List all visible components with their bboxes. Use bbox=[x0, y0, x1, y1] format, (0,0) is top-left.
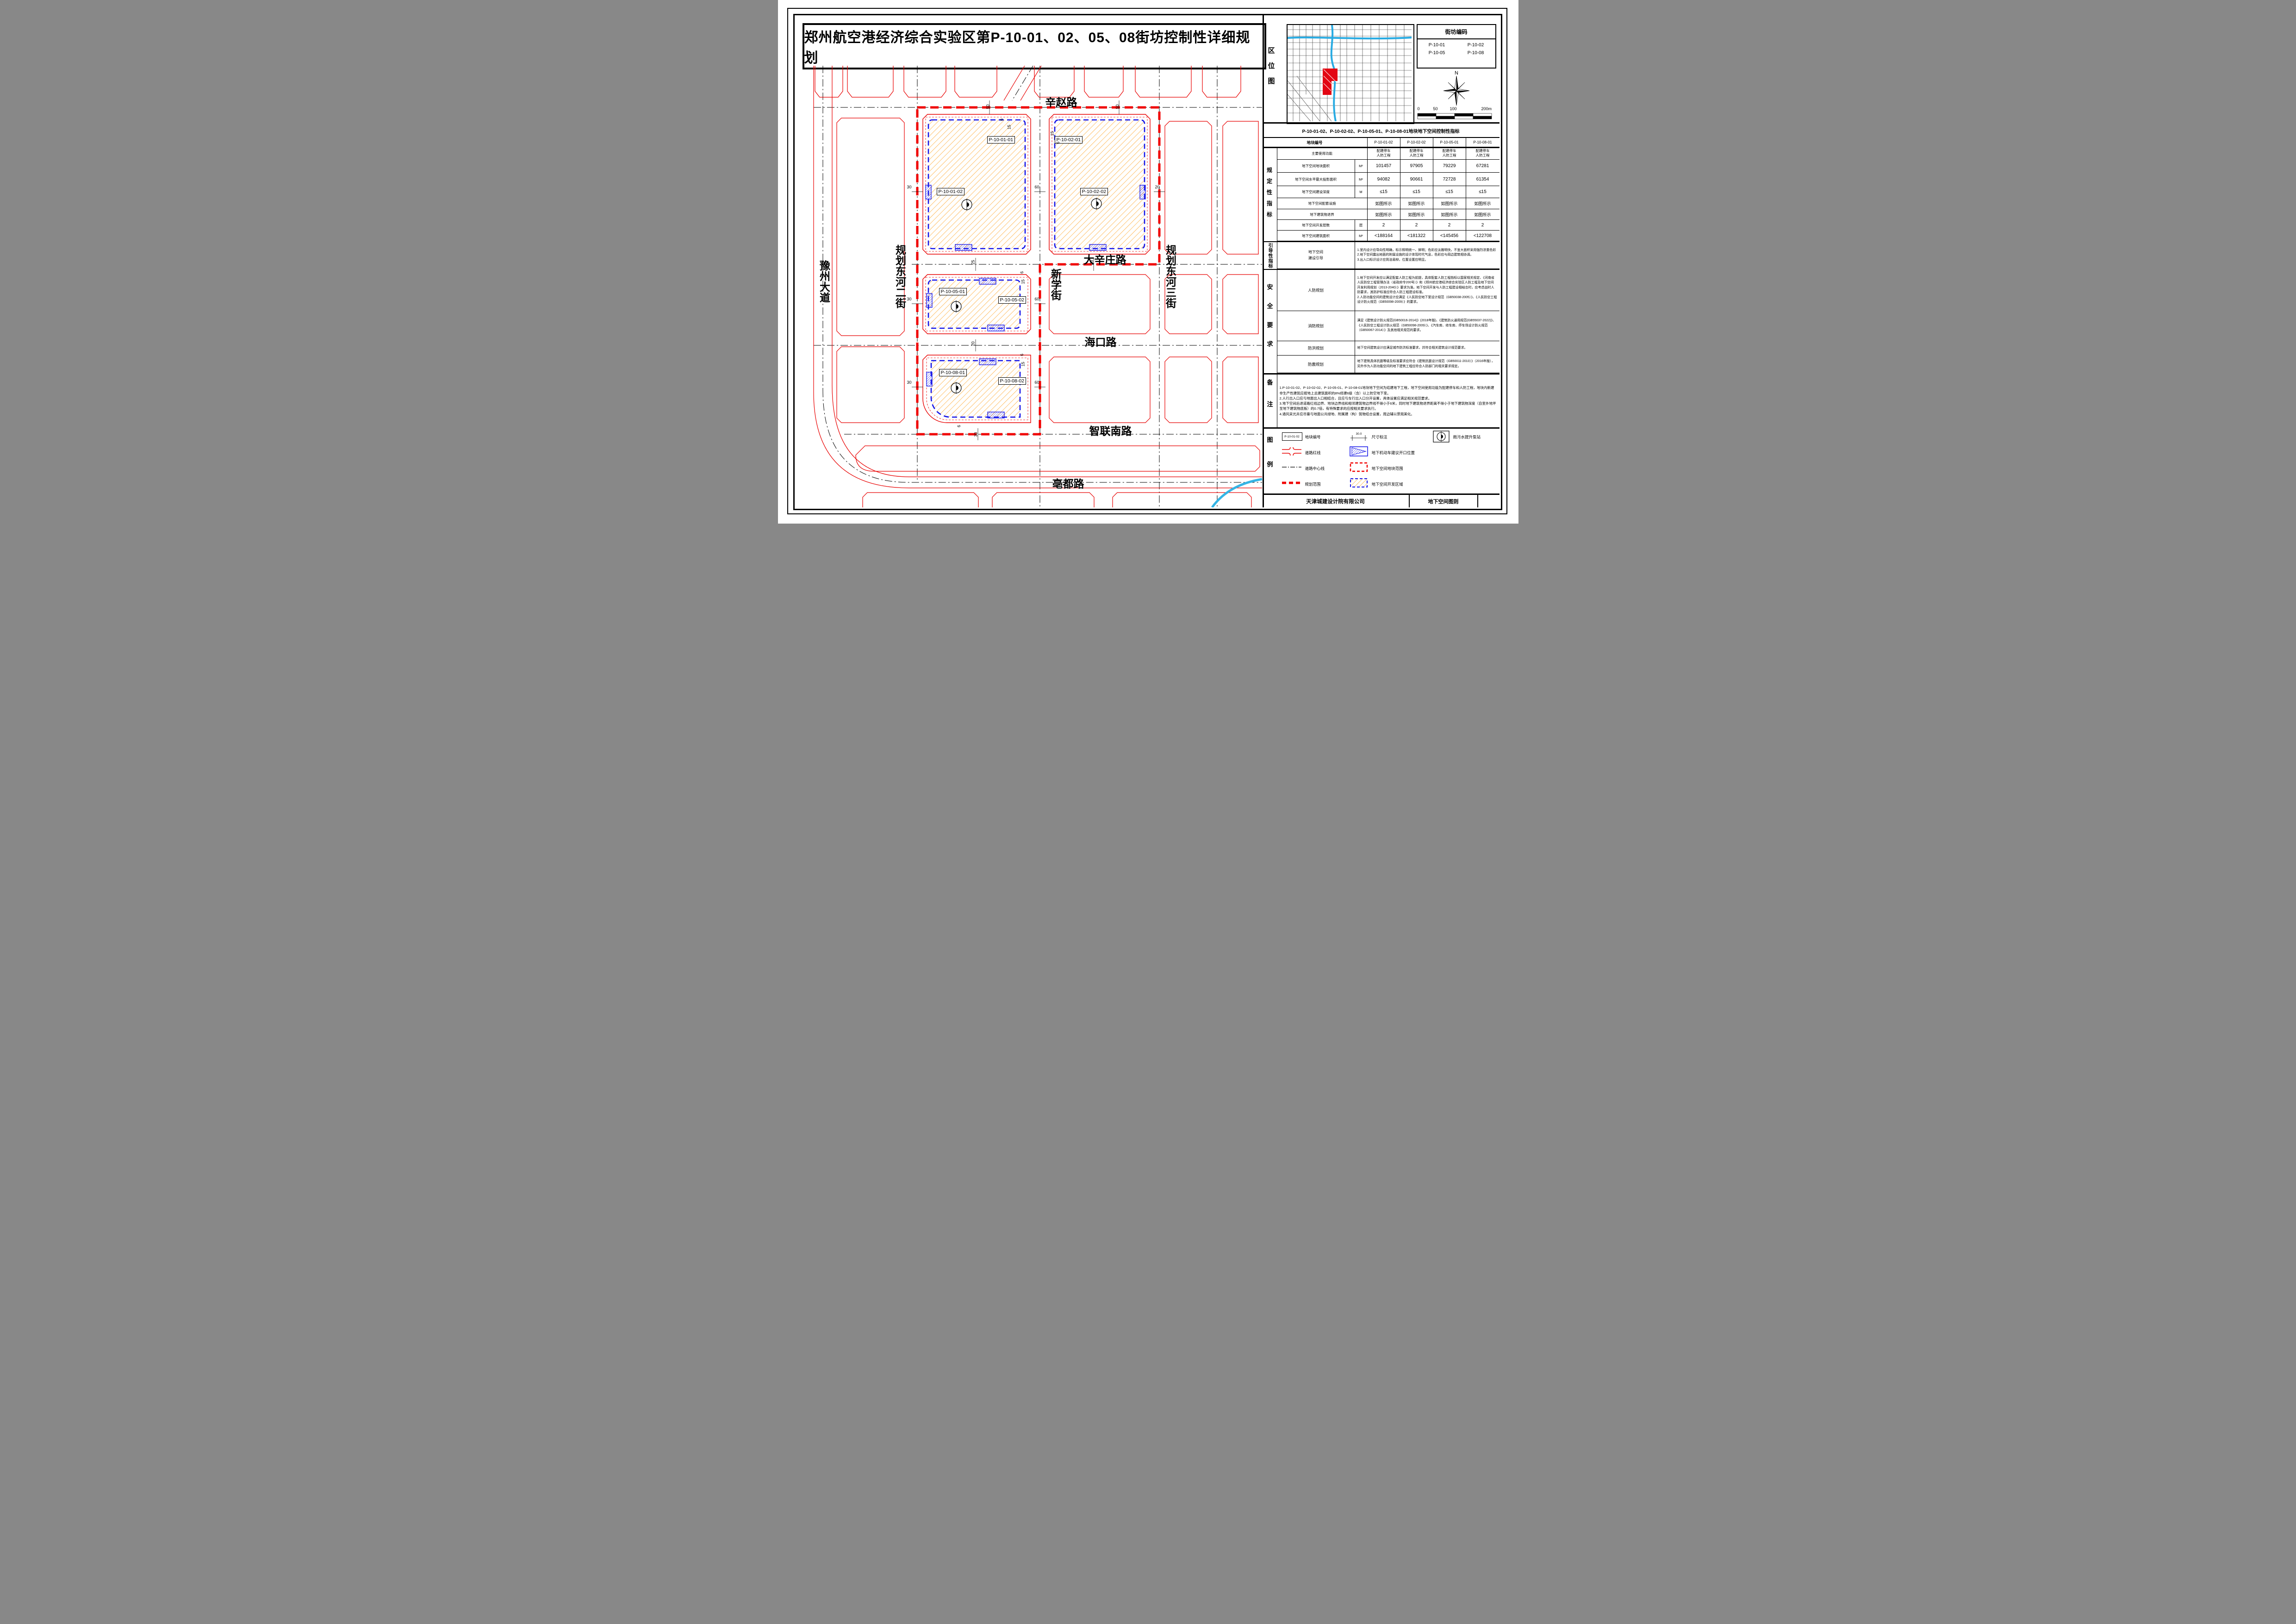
dim-label: 30 bbox=[907, 185, 912, 189]
cell-value: 2 bbox=[1433, 220, 1466, 231]
cell-value: 如图所示 bbox=[1367, 209, 1400, 220]
design-company: 天津城建设计院有限公司 bbox=[1263, 495, 1409, 507]
column-header: P-10-02-02 bbox=[1400, 138, 1433, 147]
column-header: P-10-08-01 bbox=[1466, 138, 1500, 147]
sheet-name: 地下空间图则 bbox=[1409, 495, 1477, 507]
row-label: 主要使用功能 bbox=[1277, 147, 1367, 160]
block-code-item: P-10-05 bbox=[1418, 50, 1456, 56]
guidance-section: 引导性指标 地下空间 建设引导 1.室内设计应导向性明确，标示照明统一、鲜明；色… bbox=[1263, 242, 1500, 269]
legend-label: 雨污水提升泵站 bbox=[1453, 434, 1481, 440]
dim-label: 15 bbox=[1007, 125, 1011, 129]
road-label-yuzhou: 豫州大道 bbox=[816, 260, 832, 303]
cell-value: 如图所示 bbox=[1466, 198, 1500, 209]
vehicle-opening-icon bbox=[955, 244, 972, 250]
road-label-donghe3: 规划东河三街 bbox=[1163, 244, 1178, 308]
safety-row-label: 消防规划 bbox=[1277, 311, 1355, 341]
plan-sheet: 郑州航空港经济综合实验区第P-10-01、02、05、08街坊控制性详细规划 bbox=[778, 0, 1518, 524]
cell-value: ≤15 bbox=[1433, 186, 1466, 198]
dim-label: 15 bbox=[1021, 279, 1025, 284]
planning-block-p-10-05 bbox=[923, 275, 1031, 334]
safety-row-label: 防洪规划 bbox=[1277, 341, 1355, 356]
minimap-canvas bbox=[1288, 25, 1412, 121]
cell-value: 79229 bbox=[1433, 160, 1466, 173]
block-label: P-10-01-02 bbox=[937, 188, 965, 195]
row-label: 地下空间水平最大投影面积 bbox=[1277, 173, 1355, 186]
minimap-river2 bbox=[1288, 37, 1412, 38]
cell-value: 2 bbox=[1367, 220, 1400, 231]
cell-value: 如图所示 bbox=[1367, 198, 1400, 209]
legend-label: 尺寸标注 bbox=[1372, 434, 1388, 440]
row-unit: M² bbox=[1355, 160, 1367, 173]
legend-section: 图例 P-10-01-02 地块编号 道路红线 道路中心线 规划范围 30.0 … bbox=[1263, 429, 1500, 493]
vehicle-opening-icon bbox=[979, 359, 996, 365]
road-label-xinxue: 新学街 bbox=[1048, 269, 1064, 300]
cell-value: 配建停车 人防工程 bbox=[1400, 147, 1433, 160]
block-label: P-10-02-02 bbox=[1080, 188, 1108, 195]
scale-bar-icon bbox=[1417, 112, 1496, 122]
scale-tick: 200m bbox=[1481, 106, 1492, 111]
block-label: P-10-01-01 bbox=[987, 136, 1015, 144]
page-title: 郑州航空港经济综合实验区第P-10-01、02、05、08街坊控制性详细规划 bbox=[804, 26, 1264, 67]
dim-label: 6 bbox=[1056, 142, 1060, 144]
cell-value: <188164 bbox=[1367, 231, 1400, 241]
block-code-item: P-10-08 bbox=[1456, 50, 1495, 56]
legend-underground-block-extent-icon bbox=[1350, 462, 1368, 472]
scale-tick: 100 bbox=[1450, 106, 1457, 111]
legend-label: 地下机动车建议开口位置 bbox=[1372, 450, 1415, 456]
block-label: P-10-08-02 bbox=[998, 377, 1027, 385]
legend-road-center-line-icon bbox=[1282, 463, 1301, 471]
row-unit: M bbox=[1355, 186, 1367, 198]
row-label: 地下建筑物退界 bbox=[1277, 209, 1367, 220]
row-unit: 层 bbox=[1355, 220, 1367, 231]
vehicle-opening-icon bbox=[927, 372, 932, 386]
road-label-bodu: 亳都路 bbox=[1052, 475, 1084, 491]
row-label: 地下空间开发层数 bbox=[1277, 220, 1355, 231]
footer-empty-cell bbox=[1477, 495, 1500, 507]
vehicle-opening-icon bbox=[979, 278, 996, 284]
scale-tick: 0 bbox=[1418, 106, 1420, 111]
cell-value: 101457 bbox=[1367, 160, 1400, 173]
legend-label: 道路红线 bbox=[1305, 450, 1321, 456]
guidance-text: 1.室内设计应导向性明确，标示照明统一、鲜明；色彩应淡雅明快，不宜大面积采用强烈… bbox=[1355, 242, 1500, 269]
vehicle-opening-icon bbox=[926, 185, 931, 199]
legend-dimension-icon: 30.0 bbox=[1350, 431, 1368, 441]
block-label: P-10-08-01 bbox=[939, 369, 967, 376]
cell-value: <181322 bbox=[1400, 231, 1433, 241]
dim-label: 30 bbox=[907, 297, 912, 301]
indicator-table-title: P-10-01-02、P-10-02-02、P-10-05-01、P-10-08… bbox=[1302, 127, 1459, 134]
safety-text: 满足《建筑设计防火规范(GB50016-2014)》(2018年版)、《建筑防火… bbox=[1355, 311, 1500, 341]
cell-value: ≤15 bbox=[1400, 186, 1433, 198]
vehicle-opening-icon bbox=[927, 294, 932, 307]
block-code-title: 街坊编码 bbox=[1418, 25, 1495, 39]
scale-bar: 0 50 100 200m bbox=[1417, 106, 1496, 122]
dim-label: 60 bbox=[1035, 297, 1039, 301]
cell-value: ≤15 bbox=[1466, 186, 1500, 198]
safety-row-label: 防震规划 bbox=[1277, 356, 1355, 373]
table-header-label: 地块编号 bbox=[1263, 138, 1367, 147]
road-label-donghe2: 规划东河二街 bbox=[892, 244, 908, 308]
safety-row-label: 人防规划 bbox=[1277, 270, 1355, 311]
svg-text:30.0: 30.0 bbox=[1356, 432, 1362, 436]
row-label: 地下空间建筑面积 bbox=[1277, 231, 1355, 241]
legend-label: 规划范围 bbox=[1305, 481, 1321, 487]
vehicle-opening-icon bbox=[988, 412, 1004, 418]
cell-value: 配建停车 人防工程 bbox=[1466, 147, 1500, 160]
vehicle-opening-icon bbox=[988, 325, 1004, 331]
group-label-legend: 图例 bbox=[1263, 429, 1277, 493]
planning-block-p-10-01 bbox=[923, 114, 1031, 254]
column-header: P-10-05-01 bbox=[1433, 138, 1466, 147]
legend-vehicle-opening-icon bbox=[1350, 446, 1368, 456]
row-label: 地下空间地块面积 bbox=[1277, 160, 1355, 173]
legend-road-red-line-icon bbox=[1282, 447, 1301, 456]
vehicle-opening-icon bbox=[1140, 185, 1145, 199]
road-label-haikou: 海口路 bbox=[1085, 333, 1117, 349]
group-label-regulatory: 规定性指标 bbox=[1263, 148, 1277, 241]
legend-planning-scope-icon bbox=[1282, 479, 1301, 487]
cell-value: 90661 bbox=[1400, 173, 1433, 186]
cell-value: 如图所示 bbox=[1433, 209, 1466, 220]
dim-label: 20 bbox=[1155, 185, 1160, 189]
cell-value: 如图所示 bbox=[1433, 198, 1466, 209]
safety-section: 安全要求 人防规划 1.地下空间开发应以满足配套人防工程为前提，具体配套人防工程… bbox=[1263, 270, 1500, 373]
cell-value: 配建停车 人防工程 bbox=[1433, 147, 1466, 160]
road-label-zhiliannan: 智联南路 bbox=[1089, 422, 1132, 438]
main-map: 辛赵路 大辛庄路 海口路 智联南路 亳都路 豫州大道 规划东河二街 新学街 规划… bbox=[793, 66, 1263, 507]
dim-label: 50 bbox=[986, 104, 990, 109]
vehicle-opening-icon bbox=[1089, 244, 1106, 250]
indicator-table: 地块编号 P-10-01-02 P-10-02-02 P-10-05-01 P-… bbox=[1263, 138, 1500, 241]
map-canvas bbox=[793, 66, 1263, 507]
dim-label: 30 bbox=[974, 432, 978, 437]
road-red-line-blocks bbox=[814, 66, 1262, 507]
dim-label: 6 bbox=[1000, 119, 1004, 121]
road-label-xinzhao: 辛赵路 bbox=[1045, 94, 1077, 109]
cell-value: <145456 bbox=[1433, 231, 1466, 241]
legend-pump-station-icon bbox=[1433, 431, 1450, 443]
legend-label: 地块编号 bbox=[1305, 434, 1321, 440]
dim-label: 50 bbox=[1115, 104, 1120, 109]
indicator-table-title-row: P-10-01-02、P-10-02-02、P-10-05-01、P-10-08… bbox=[1263, 124, 1500, 138]
title-box: 郑州航空港经济综合实验区第P-10-01、02、05、08街坊控制性详细规划 bbox=[803, 23, 1266, 69]
row-unit: M² bbox=[1355, 173, 1367, 186]
compass-n-label: N bbox=[1455, 70, 1458, 76]
scale-tick: 50 bbox=[1433, 106, 1438, 111]
safety-text: 1.地下空间开发应以满足配套人防工程为前提，具体配套人防工程指标以国家相关规定、… bbox=[1355, 270, 1500, 311]
dim-label: 20 bbox=[971, 341, 975, 346]
legend-label: 地下空间地块范围 bbox=[1372, 466, 1403, 471]
row-label: 地下空间建设深度 bbox=[1277, 186, 1355, 198]
road-centerlines bbox=[814, 66, 1262, 507]
dim-label: 6 bbox=[957, 425, 961, 427]
dim-label: 25 bbox=[1089, 260, 1094, 264]
legend-block-code-icon: P-10-01-02 bbox=[1282, 432, 1302, 441]
block-code-item: P-10-02 bbox=[1456, 43, 1495, 48]
block-code-box: 街坊编码 P-10-01 P-10-02 P-10-05 P-10-08 bbox=[1417, 24, 1496, 69]
dim-label: 6 bbox=[1020, 354, 1024, 356]
cell-value: ≤15 bbox=[1367, 186, 1400, 198]
group-label-guidance: 引导性指标 bbox=[1263, 242, 1277, 269]
safety-text: 地下建筑具体抗震等级及标准要求应符合《建筑抗震设计规范（GB50011-2010… bbox=[1355, 356, 1500, 373]
river bbox=[1212, 479, 1262, 507]
legend-label: 道路中心线 bbox=[1305, 466, 1325, 471]
group-label-notes: 备注 bbox=[1263, 375, 1277, 427]
block-label: P-10-05-02 bbox=[998, 296, 1027, 304]
dim-label: 30 bbox=[907, 381, 912, 385]
cell-value: 如图所示 bbox=[1400, 209, 1433, 220]
location-map-label: 区位图 bbox=[1264, 28, 1278, 111]
location-minimap bbox=[1287, 24, 1414, 124]
cell-value: 2 bbox=[1400, 220, 1433, 231]
guidance-row-label: 地下空间 建设引导 bbox=[1277, 242, 1355, 269]
legend-label: 地下空间开发区域 bbox=[1372, 481, 1403, 487]
dim-label: 15 bbox=[1021, 362, 1025, 366]
cell-value: 如图所示 bbox=[1466, 209, 1500, 220]
row-unit: M² bbox=[1355, 231, 1367, 241]
block-label: P-10-05-01 bbox=[939, 288, 967, 295]
notes-section: 备注 1.P-10-01-02、P-10-02-02、P-10-05-01、P-… bbox=[1263, 375, 1500, 427]
cell-value: 72728 bbox=[1433, 173, 1466, 186]
compass-box: N bbox=[1417, 69, 1496, 106]
block-code-item: P-10-01 bbox=[1418, 43, 1456, 48]
cell-value: 67281 bbox=[1466, 160, 1500, 173]
dim-label: 60 bbox=[1035, 185, 1039, 189]
cell-value: 94082 bbox=[1367, 173, 1400, 186]
planning-block-p-10-02 bbox=[1049, 114, 1150, 254]
notes-text: 1.P-10-01-02、P-10-02-02、P-10-05-01、P-10-… bbox=[1277, 375, 1500, 427]
legend-underground-dev-area-icon bbox=[1350, 478, 1368, 488]
cell-value: 配建停车 人防工程 bbox=[1367, 147, 1400, 160]
column-header: P-10-01-02 bbox=[1367, 138, 1400, 147]
row-label: 地下空间配套设施 bbox=[1277, 198, 1367, 209]
group-label-safety: 安全要求 bbox=[1263, 270, 1277, 373]
dim-label: 6 bbox=[1020, 271, 1024, 274]
dim-label: 60 bbox=[1035, 381, 1039, 385]
cell-value: 97905 bbox=[1400, 160, 1433, 173]
planning-block-p-10-08 bbox=[923, 355, 1031, 423]
cell-value: 2 bbox=[1466, 220, 1500, 231]
cell-value: 如图所示 bbox=[1400, 198, 1433, 209]
cell-value: <122708 bbox=[1466, 231, 1500, 241]
safety-text: 地下空间建筑设计应满足城市防洪标准要求，并符合相关建筑设计规范要求。 bbox=[1355, 341, 1500, 356]
compass-rose-icon bbox=[1444, 76, 1469, 106]
cell-value: 61354 bbox=[1466, 173, 1500, 186]
dim-label: 25 bbox=[971, 260, 975, 264]
dim-label: 15 bbox=[1050, 131, 1054, 136]
